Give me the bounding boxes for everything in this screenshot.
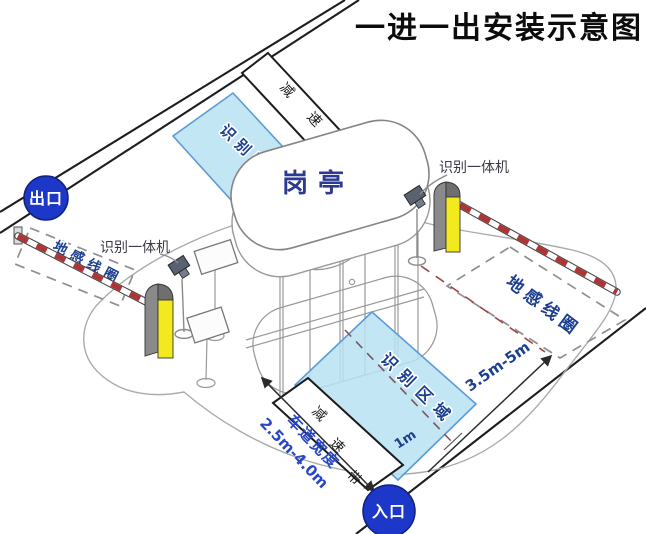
sign-board-a — [194, 240, 238, 275]
barrier-post-left-side — [145, 284, 158, 356]
diagram-canvas: 减速带 识别区域 地感线圈 识别一体机 — [0, 0, 646, 534]
barrier-post-left — [145, 284, 173, 358]
exit-lane-equipment: 地感线圈 识别一体机 — [14, 227, 238, 388]
lane-center-dash-right — [421, 266, 545, 352]
exit-badge: 出口 — [24, 176, 68, 220]
barrier-post-right — [434, 182, 460, 252]
installation-diagram: 减速带 识别区域 地感线圈 识别一体机 — [0, 0, 646, 534]
barrier-post-left-cap — [158, 284, 173, 302]
camera-right-base — [409, 257, 426, 265]
diagram-title: 一进一出安装示意图 — [355, 11, 643, 46]
barrier-post-left-body — [158, 300, 173, 358]
exit-badge-label: 出口 — [29, 189, 63, 208]
barrier-post-right-body — [446, 197, 460, 252]
camera-left-label: 识别一体机 — [100, 240, 170, 256]
camera-left-pole — [182, 279, 184, 332]
entrance-badge: 入口 — [363, 485, 415, 534]
booth-door-handle — [349, 279, 354, 284]
camera-right-label: 识别一体机 — [439, 160, 509, 176]
sign-post-b-pole — [206, 338, 207, 380]
barrier-post-right-side — [434, 182, 446, 251]
entrance-badge-label: 入口 — [372, 502, 406, 521]
barrier-post-right-cap — [446, 182, 460, 199]
loop-distance-label: 3.5m-5m — [462, 338, 533, 395]
booth-label: 岗亭 — [282, 168, 354, 199]
sign-post-b — [187, 307, 229, 387]
